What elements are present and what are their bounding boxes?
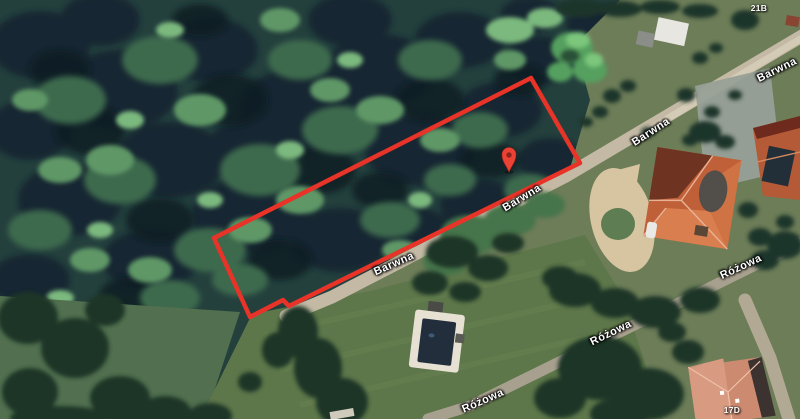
- pin-inner-dot: [506, 152, 511, 157]
- satellite-imagery: [0, 0, 800, 419]
- satellite-map-viewport[interactable]: Barwna Barwna Barwna Barwna Różowa Różow…: [0, 0, 800, 419]
- house-main: [643, 147, 741, 250]
